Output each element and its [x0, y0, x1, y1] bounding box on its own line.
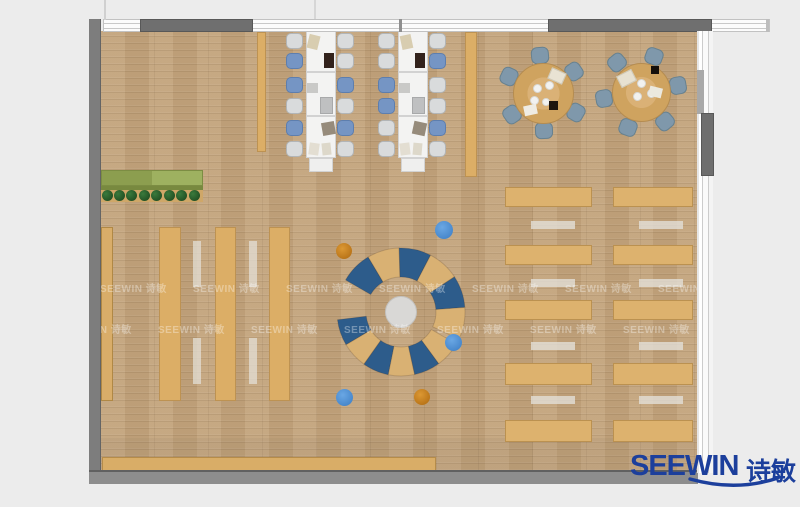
- plate: [533, 84, 542, 93]
- shelf-row: [613, 300, 693, 320]
- left-wall: [89, 19, 101, 484]
- desk-chair: [337, 98, 354, 114]
- aisle-mat: [639, 396, 683, 404]
- aisle-mat: [531, 396, 575, 404]
- aisle-mat: [193, 241, 201, 287]
- wall-line-right: [766, 19, 769, 32]
- lounge-chair: [668, 75, 688, 96]
- right-wall-block: [701, 113, 714, 176]
- shelf-row: [505, 187, 592, 207]
- desk-chair: [337, 120, 354, 136]
- desk-chair: [378, 77, 395, 93]
- plant: [189, 190, 200, 201]
- table-item-laptop: [320, 97, 333, 114]
- desk-chair: [286, 53, 303, 69]
- aisle-mat: [531, 342, 575, 350]
- bookshelf-column: [269, 227, 290, 401]
- bookshelf-column: [159, 227, 181, 401]
- divider-shelf: [465, 32, 477, 177]
- plant: [102, 190, 113, 201]
- aisle-mat: [531, 221, 575, 229]
- aisle-mat: [249, 338, 257, 384]
- desk-chair: [378, 98, 395, 114]
- plate: [545, 81, 554, 90]
- study-table-end: [401, 158, 425, 172]
- desk-chair: [337, 77, 354, 93]
- shelf-row: [505, 420, 592, 442]
- ottoman-orange: [414, 389, 430, 405]
- ottoman-orange: [336, 243, 352, 259]
- plant: [139, 190, 150, 201]
- window-mullion: [399, 19, 402, 32]
- desk-chair: [429, 141, 446, 157]
- shelf-row: [505, 363, 592, 385]
- logo-swoosh: [688, 477, 780, 491]
- plant: [151, 190, 162, 201]
- planter-edge: [101, 186, 203, 190]
- divider-shelf: [257, 32, 266, 152]
- table-item-pad: [307, 83, 318, 93]
- aisle-mat: [639, 342, 683, 350]
- desk-chair: [429, 77, 446, 93]
- table-item-box: [321, 121, 336, 136]
- wall-shelf: [101, 227, 113, 401]
- planter-bench: [101, 170, 203, 186]
- table-item-device: [549, 101, 558, 110]
- bottom-bench: [102, 457, 436, 471]
- table-item-paper: [412, 143, 422, 156]
- table-item-paper: [321, 143, 331, 156]
- aisle-mat: [639, 279, 683, 287]
- table-item-device: [651, 66, 659, 74]
- top-wall-right-segment: [548, 19, 712, 32]
- desk-chair: [429, 33, 446, 49]
- bottom-wall: [89, 470, 698, 484]
- plant: [176, 190, 187, 201]
- desk-chair: [286, 77, 303, 93]
- lounge-chair: [530, 46, 549, 65]
- desk-chair: [286, 141, 303, 157]
- plate: [637, 79, 646, 88]
- desk-chair: [429, 120, 446, 136]
- lounge-chair: [535, 122, 554, 140]
- wall-line-left: [104, 0, 106, 20]
- aisle-mat: [193, 338, 201, 384]
- table-item-paper: [399, 142, 410, 155]
- study-table-end: [309, 158, 333, 172]
- shelf-row: [613, 420, 693, 442]
- desk-chair: [337, 141, 354, 157]
- wall-line-mid: [314, 0, 316, 19]
- shelf-row: [613, 363, 693, 385]
- seewin-logo: SEEWIN 诗敏: [630, 450, 800, 492]
- table-item-laptop: [412, 97, 425, 114]
- desk-chair: [286, 98, 303, 114]
- aisle-mat: [531, 279, 575, 287]
- aisle-mat: [639, 221, 683, 229]
- furniture-layer: [0, 0, 800, 507]
- floor-plan: SEEWIN 诗敏SEEWIN 诗敏SEEWIN 诗敏SEEWIN 诗敏SEEW…: [0, 0, 800, 507]
- desk-chair: [286, 120, 303, 136]
- desk-chair: [378, 33, 395, 49]
- right-wall-thin-segment: [697, 70, 704, 114]
- desk-chair: [337, 53, 354, 69]
- shelf-row: [613, 245, 693, 265]
- plant: [114, 190, 125, 201]
- plate: [633, 92, 642, 101]
- ottoman-blue: [435, 221, 453, 239]
- desk-chair: [429, 98, 446, 114]
- table-item-box: [412, 121, 427, 136]
- desk-chair: [378, 53, 395, 69]
- top-wall-left-segment: [140, 19, 253, 32]
- lounge-chair: [594, 88, 614, 109]
- desk-chair: [378, 141, 395, 157]
- table-item-pad: [399, 83, 410, 93]
- ottoman-blue: [445, 334, 462, 351]
- table-item-paper: [308, 142, 320, 155]
- desk-chair: [378, 120, 395, 136]
- table-item-book: [415, 53, 425, 68]
- ottoman-blue: [336, 389, 353, 406]
- table-item-book: [324, 53, 334, 68]
- plant: [126, 190, 137, 201]
- desk-chair: [429, 53, 446, 69]
- round-table: [612, 63, 671, 122]
- desk-chair: [337, 33, 354, 49]
- shelf-row: [505, 245, 592, 265]
- shelf-row: [613, 187, 693, 207]
- bookshelf-column: [215, 227, 236, 401]
- plant: [164, 190, 175, 201]
- desk-chair: [286, 33, 303, 49]
- aisle-mat: [249, 241, 257, 287]
- shelf-row: [505, 300, 592, 320]
